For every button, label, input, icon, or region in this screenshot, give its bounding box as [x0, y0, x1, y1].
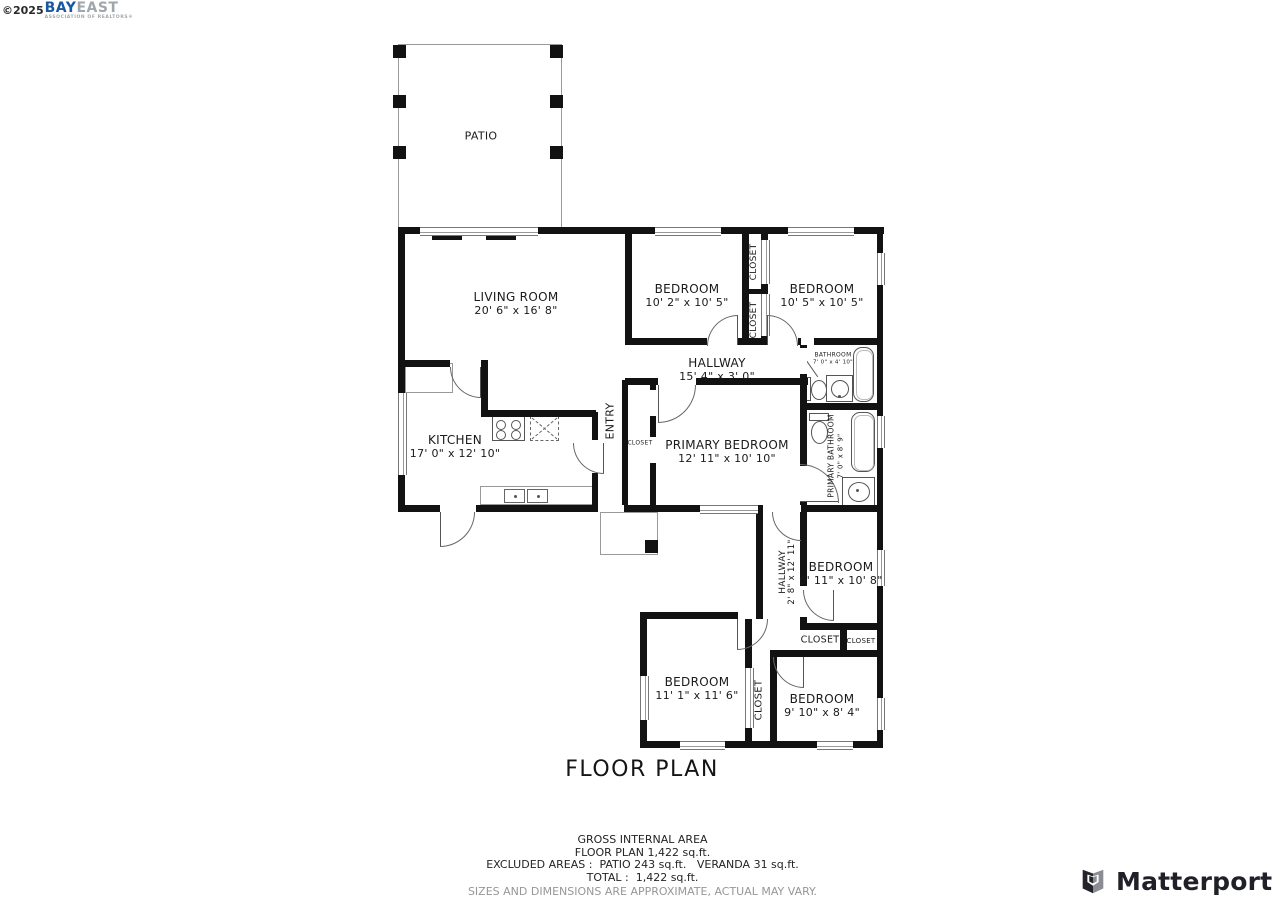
matterport-wordmark: Matterport	[1116, 867, 1272, 896]
primary-sink-icon	[842, 477, 875, 506]
door-leaf	[440, 512, 441, 546]
room-dims: 7' 0" x 4' 10"	[813, 359, 853, 365]
burner-icon	[511, 420, 521, 430]
room-label-bathroom: BATHROOM 7' 0" x 4' 10"	[813, 352, 853, 365]
door-leaf	[767, 315, 768, 345]
door-leaf	[833, 590, 834, 620]
sliding-door-mark	[486, 236, 516, 240]
appliance-x	[531, 417, 558, 440]
window	[398, 393, 407, 475]
room-label-primary-bathroom: PRIMARY BATHROOM 7' 0" x 8' 9"	[828, 414, 845, 497]
wall	[398, 360, 450, 367]
door-arc	[573, 443, 604, 474]
room-label-bedroom-bottom-left: BEDROOM 11' 1" x 11' 6"	[655, 676, 738, 702]
room-label-hallway-middle: HALLWAY 2' 8" x 12' 11"	[778, 539, 798, 604]
room-name: LIVING ROOM	[474, 291, 559, 305]
wall	[625, 338, 883, 345]
room-label-living-room: LIVING ROOM 20' 6" x 16' 8"	[474, 291, 559, 317]
room-name: PRIMARY BATHROOM	[828, 414, 837, 497]
matterport-logo: Matterport	[1078, 866, 1272, 896]
bayeast-caption: ASSOCIATION OF REALTORS®	[45, 15, 134, 20]
bayeast-bay: BAY	[45, 0, 77, 16]
room-dims: 7' 0" x 8' 9"	[836, 414, 844, 497]
wall	[800, 403, 883, 410]
room-name: KITCHEN	[410, 434, 500, 448]
door-leaf	[737, 315, 738, 345]
floor-plan-page: ©2025 BAYEAST ASSOCIATION OF REALTORS®	[0, 0, 1285, 906]
wall	[770, 650, 805, 657]
patio-post	[550, 95, 563, 108]
window	[877, 698, 885, 730]
door-opening	[440, 505, 476, 512]
room-name: CLOSET	[753, 680, 765, 721]
room-label-closet-row-left: CLOSET	[801, 636, 840, 647]
room-dims: 2' 8" x 12' 11"	[788, 539, 798, 604]
window	[817, 741, 853, 750]
window	[761, 240, 770, 284]
room-label-entry: ENTRY	[605, 402, 618, 439]
bathtub-basin	[854, 415, 874, 471]
patio-post	[645, 540, 658, 553]
wall	[481, 360, 488, 417]
room-name: PATIO	[465, 131, 498, 144]
door-opening	[650, 390, 656, 416]
burner-icon	[511, 430, 521, 440]
patio-post	[393, 146, 406, 159]
window	[420, 227, 538, 236]
room-name: BEDROOM	[780, 283, 863, 297]
door-leaf	[800, 501, 838, 502]
room-label-closet-top-lower: CLOSET	[749, 302, 759, 339]
burner-icon	[496, 420, 506, 430]
room-name: BEDROOM	[799, 561, 882, 575]
bayeast-wordmark-row: BAYEAST	[45, 1, 134, 15]
patio-post	[393, 95, 406, 108]
patio-post	[550, 45, 563, 58]
door-arc	[440, 512, 475, 547]
room-dims: 15' 4" x 3' 0"	[679, 371, 755, 384]
room-name: CLOSET	[627, 441, 652, 448]
room-label-closet-top-upper: CLOSET	[749, 244, 759, 281]
room-label-bedroom-top-right: BEDROOM 10' 5" x 10' 5"	[780, 283, 863, 309]
door-arc	[803, 590, 834, 621]
door-opening	[598, 505, 624, 512]
room-dims: 6' 11" x 10' 8"	[799, 575, 882, 588]
room-name: BATHROOM	[813, 352, 853, 359]
room-label-patio: PATIO	[465, 131, 498, 144]
room-name: BEDROOM	[784, 693, 860, 707]
window	[788, 227, 854, 236]
copyright-text: ©2025	[2, 4, 44, 17]
matterport-icon	[1078, 866, 1108, 896]
room-dims: 10' 2" x 10' 5"	[645, 297, 728, 310]
room-label-primary-bedroom: PRIMARY BEDROOM 12' 11" x 10' 10"	[665, 439, 789, 465]
room-name: CLOSET	[749, 302, 759, 339]
bathroom-sink-icon	[826, 375, 853, 402]
room-label-kitchen: KITCHEN 17' 0" x 12' 10"	[410, 434, 500, 460]
door-leaf	[603, 443, 604, 473]
page-title: FLOOR PLAN	[565, 757, 719, 782]
window	[877, 416, 885, 448]
kitchen-sink-icon	[504, 489, 525, 503]
door-opening	[801, 338, 814, 345]
room-name: ENTRY	[605, 402, 618, 439]
bayeast-logo: ©2025 BAYEAST ASSOCIATION OF REALTORS®	[2, 1, 133, 20]
patio-post	[393, 45, 406, 58]
door-arc	[737, 619, 768, 650]
wall	[756, 512, 763, 619]
wall	[625, 227, 632, 345]
room-label-bedroom-top-middle: BEDROOM 10' 2" x 10' 5"	[645, 283, 728, 309]
wall	[877, 227, 883, 748]
bayeast-east: EAST	[76, 0, 118, 16]
wall	[398, 505, 599, 512]
room-name: BEDROOM	[655, 676, 738, 690]
pantry-cabinet	[405, 363, 453, 393]
room-label-hallway-top: HALLWAY 15' 4" x 3' 0"	[679, 357, 755, 383]
room-name: CLOSET	[801, 636, 840, 647]
room-label-closet-bottom: CLOSET	[753, 680, 765, 721]
window	[655, 227, 721, 236]
bathtub-basin	[856, 350, 873, 400]
room-name: CLOSET	[749, 244, 759, 281]
room-name: PRIMARY BEDROOM	[665, 439, 789, 453]
room-dims: 10' 5" x 10' 5"	[780, 297, 863, 310]
room-label-bedroom-right: BEDROOM 6' 11" x 10' 8"	[799, 561, 882, 587]
kitchen-sink-icon	[527, 489, 548, 503]
sliding-door-mark	[432, 236, 462, 240]
door-arc	[767, 315, 798, 346]
door-arc	[450, 367, 481, 398]
bayeast-wordmark: BAYEAST ASSOCIATION OF REALTORS®	[45, 1, 134, 20]
door-leaf	[803, 657, 804, 687]
room-dims: 20' 6" x 16' 8"	[474, 305, 559, 318]
appliance-icon	[530, 416, 559, 441]
gross-internal-area-label: GROSS INTERNAL AREA	[0, 834, 1285, 847]
room-dims: 11' 1" x 11' 6"	[655, 690, 738, 703]
door-leaf	[480, 367, 481, 397]
door-opening	[763, 505, 801, 512]
room-name: BEDROOM	[645, 283, 728, 297]
door-leaf	[737, 619, 738, 649]
window	[640, 676, 649, 720]
toilet-bowl-icon	[811, 380, 827, 400]
window	[680, 741, 725, 750]
wall	[640, 612, 738, 619]
wall	[481, 410, 596, 417]
door-arc	[658, 385, 696, 423]
door-arc	[773, 657, 804, 688]
window	[877, 253, 885, 285]
room-label-bedroom-bottom-right: BEDROOM 9' 10" x 8' 4"	[784, 693, 860, 719]
room-label-closet-row-right: CLOSET	[847, 637, 876, 645]
window	[700, 505, 758, 514]
room-dims: 12' 11" x 10' 10"	[665, 453, 789, 466]
patio-post	[550, 146, 563, 159]
door-arc	[707, 315, 738, 346]
room-name: CLOSET	[847, 637, 876, 645]
door-opening	[800, 348, 807, 374]
room-name: HALLWAY	[679, 357, 755, 371]
door-arc	[772, 512, 801, 541]
door-leaf	[658, 385, 659, 422]
room-dims: 9' 10" x 8' 4"	[784, 707, 860, 720]
room-label-closet-entry: CLOSET	[627, 441, 652, 448]
toilet-bowl-icon	[811, 421, 828, 444]
room-dims: 17' 0" x 12' 10"	[410, 448, 500, 461]
